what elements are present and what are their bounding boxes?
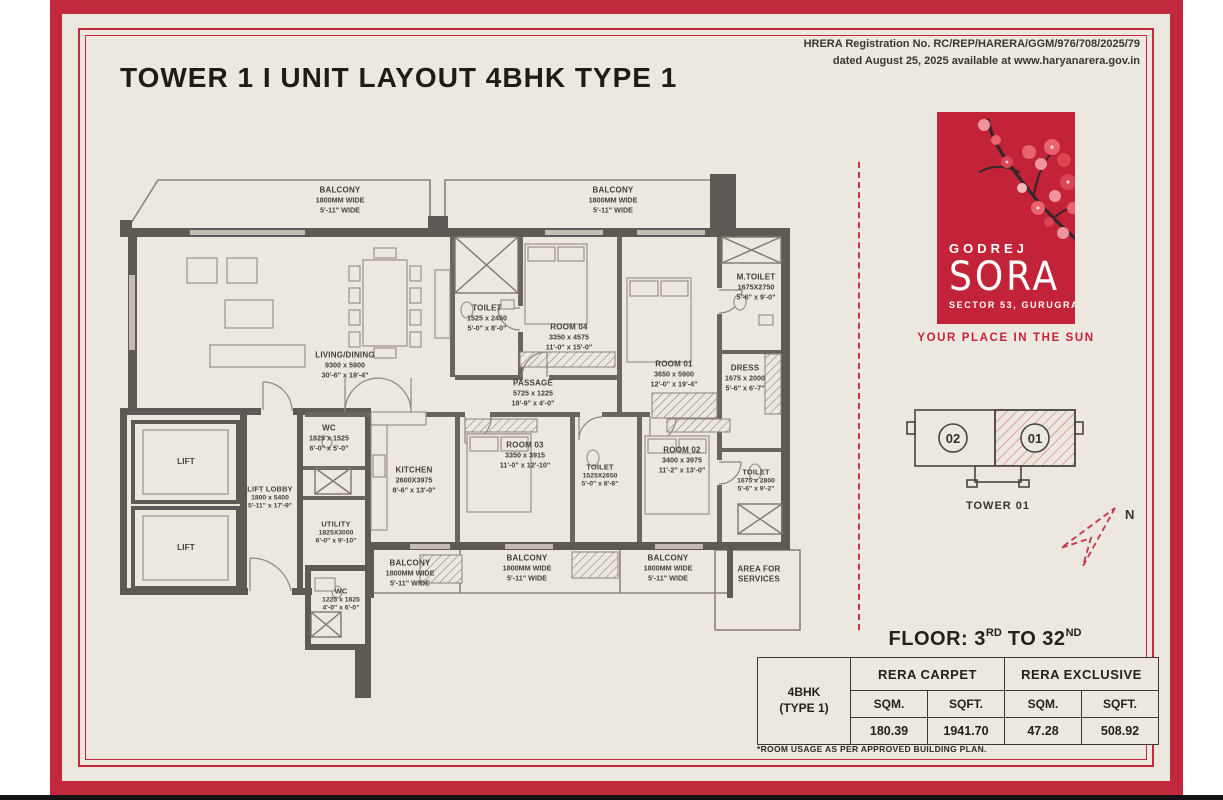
label-toilet-room04: TOILET 1525 x 2450 5'-0" x 8'-0" — [467, 303, 507, 332]
hrera-line1: HRERA Registration No. RC/REP/HARERA/GGM… — [804, 36, 1140, 53]
label-balcony-top-right: BALCONY 1800MM WIDE 5'-11" WIDE — [589, 185, 638, 214]
val-exclusive-sqft: 508.92 — [1082, 718, 1159, 745]
logo-location: SECTOR 53, GURUGRAM — [949, 300, 1067, 310]
label-passage: PASSAGE 5725 x 1225 18'-9" x 4'-0" — [512, 378, 555, 407]
label-toilet-mid: TOILET 1525X2650 5'-0" x 8'-8" — [582, 462, 619, 489]
label-toilet-right: TOILET 1675 x 2800 5'-6" x 9'-2" — [737, 467, 775, 494]
label-kitchen: KITCHEN 2600X3975 8'-6" x 13'-0" — [393, 465, 436, 494]
label-balcony-bottom-mid: BALCONY 1800MM WIDE 5'-11" WIDE — [503, 553, 552, 582]
page-title: TOWER 1 I UNIT LAYOUT 4BHK TYPE 1 — [120, 62, 677, 94]
col-sqm-exclusive: SQM. — [1005, 691, 1082, 718]
hrera-line2: dated August 25, 2025 available at www.h… — [804, 53, 1140, 70]
label-living-dining: LIVING/DINING 9300 x 5900 30'-6" x 19'-4… — [315, 350, 375, 379]
floor-range-heading: FLOOR: 3RD TO 32ND — [855, 628, 1115, 651]
label-utility: UTILITY 1825X3000 6'-0" x 9'-10" — [316, 519, 357, 546]
brand-tagline: YOUR PLACE IN THE SUN — [917, 332, 1094, 344]
label-lift-1: LIFT — [177, 457, 195, 467]
rera-exclusive-header: RERA EXCLUSIVE — [1005, 658, 1159, 691]
hrera-registration-text: HRERA Registration No. RC/REP/HARERA/GGM… — [804, 36, 1140, 70]
label-master-toilet: M.TOILET 1675X2750 5'-6" x 9'-0" — [736, 272, 775, 301]
label-balcony-bottom-left: BALCONY 1800MM WIDE 5'-11" WIDE — [386, 558, 435, 587]
label-room02: ROOM 02 3400 x 3975 11'-2" x 13'-0" — [659, 445, 706, 474]
screenshot-bottom-edge — [0, 795, 1223, 800]
logo-name: SORA — [949, 256, 1067, 298]
north-arrow: N — [1053, 492, 1148, 582]
lift-shafts — [133, 422, 238, 588]
floor-plan: BALCONY 1800MM WIDE 5'-11" WIDE BALCONY … — [115, 160, 815, 720]
label-room04: ROOM 04 3350 x 4575 11'-0" x 15'-0" — [546, 322, 593, 351]
rera-carpet-header: RERA CARPET — [851, 658, 1005, 691]
val-carpet-sqm: 180.39 — [851, 718, 928, 745]
dashed-separator — [858, 162, 860, 630]
col-sqft-carpet: SQFT. — [928, 691, 1005, 718]
label-room03: ROOM 03 3350 x 3915 11'-0" x 12'-10" — [500, 440, 551, 469]
rera-area-table: 4BHK (TYPE 1) RERA CARPET RERA EXCLUSIVE… — [757, 657, 1159, 745]
val-exclusive-sqm: 47.28 — [1005, 718, 1082, 745]
floor-plan-drawing — [115, 160, 815, 720]
col-sqm-carpet: SQM. — [851, 691, 928, 718]
label-balcony-bottom-right: BALCONY 1800MM WIDE 5'-11" WIDE — [644, 553, 693, 582]
col-sqft-exclusive: SQFT. — [1082, 691, 1159, 718]
godrej-sora-logo-card: GODREJ SORA SECTOR 53, GURUGRAM — [937, 112, 1075, 324]
label-lift-lobby: LIFT LOBBY 1800 x 5400 5'-11" x 17'-9" — [247, 484, 293, 511]
logo-text-block: GODREJ SORA SECTOR 53, GURUGRAM — [949, 241, 1067, 310]
keyplan-unit-02: 02 — [946, 431, 960, 446]
label-dress: DRESS 1675 x 2000 5'-6" x 6'-7" — [725, 363, 765, 392]
room-usage-footnote: *ROOM USAGE AS PER APPROVED BUILDING PLA… — [757, 744, 987, 754]
unit-type-cell: 4BHK (TYPE 1) — [758, 658, 851, 745]
keyplan-unit-01: 01 — [1028, 431, 1042, 446]
label-wc-lower: WC 1225 x 1825 4'-0" x 6'-0" — [322, 586, 360, 613]
north-label: N — [1125, 507, 1134, 522]
label-area-for-services: AREA FOR SERVICES — [730, 565, 788, 586]
label-lift-2: LIFT — [177, 543, 195, 553]
label-room01: ROOM 01 3650 x 5900 12'-0" x 19'-4" — [651, 359, 698, 388]
label-wc-upper: WC 1825 x 1525 6'-0" x 5'-0" — [309, 423, 349, 452]
val-carpet-sqft: 1941.70 — [928, 718, 1005, 745]
key-plan-drawing: 02 01 — [903, 396, 1093, 492]
label-balcony-top-left: BALCONY 1800MM WIDE 5'-11" WIDE — [316, 185, 365, 214]
